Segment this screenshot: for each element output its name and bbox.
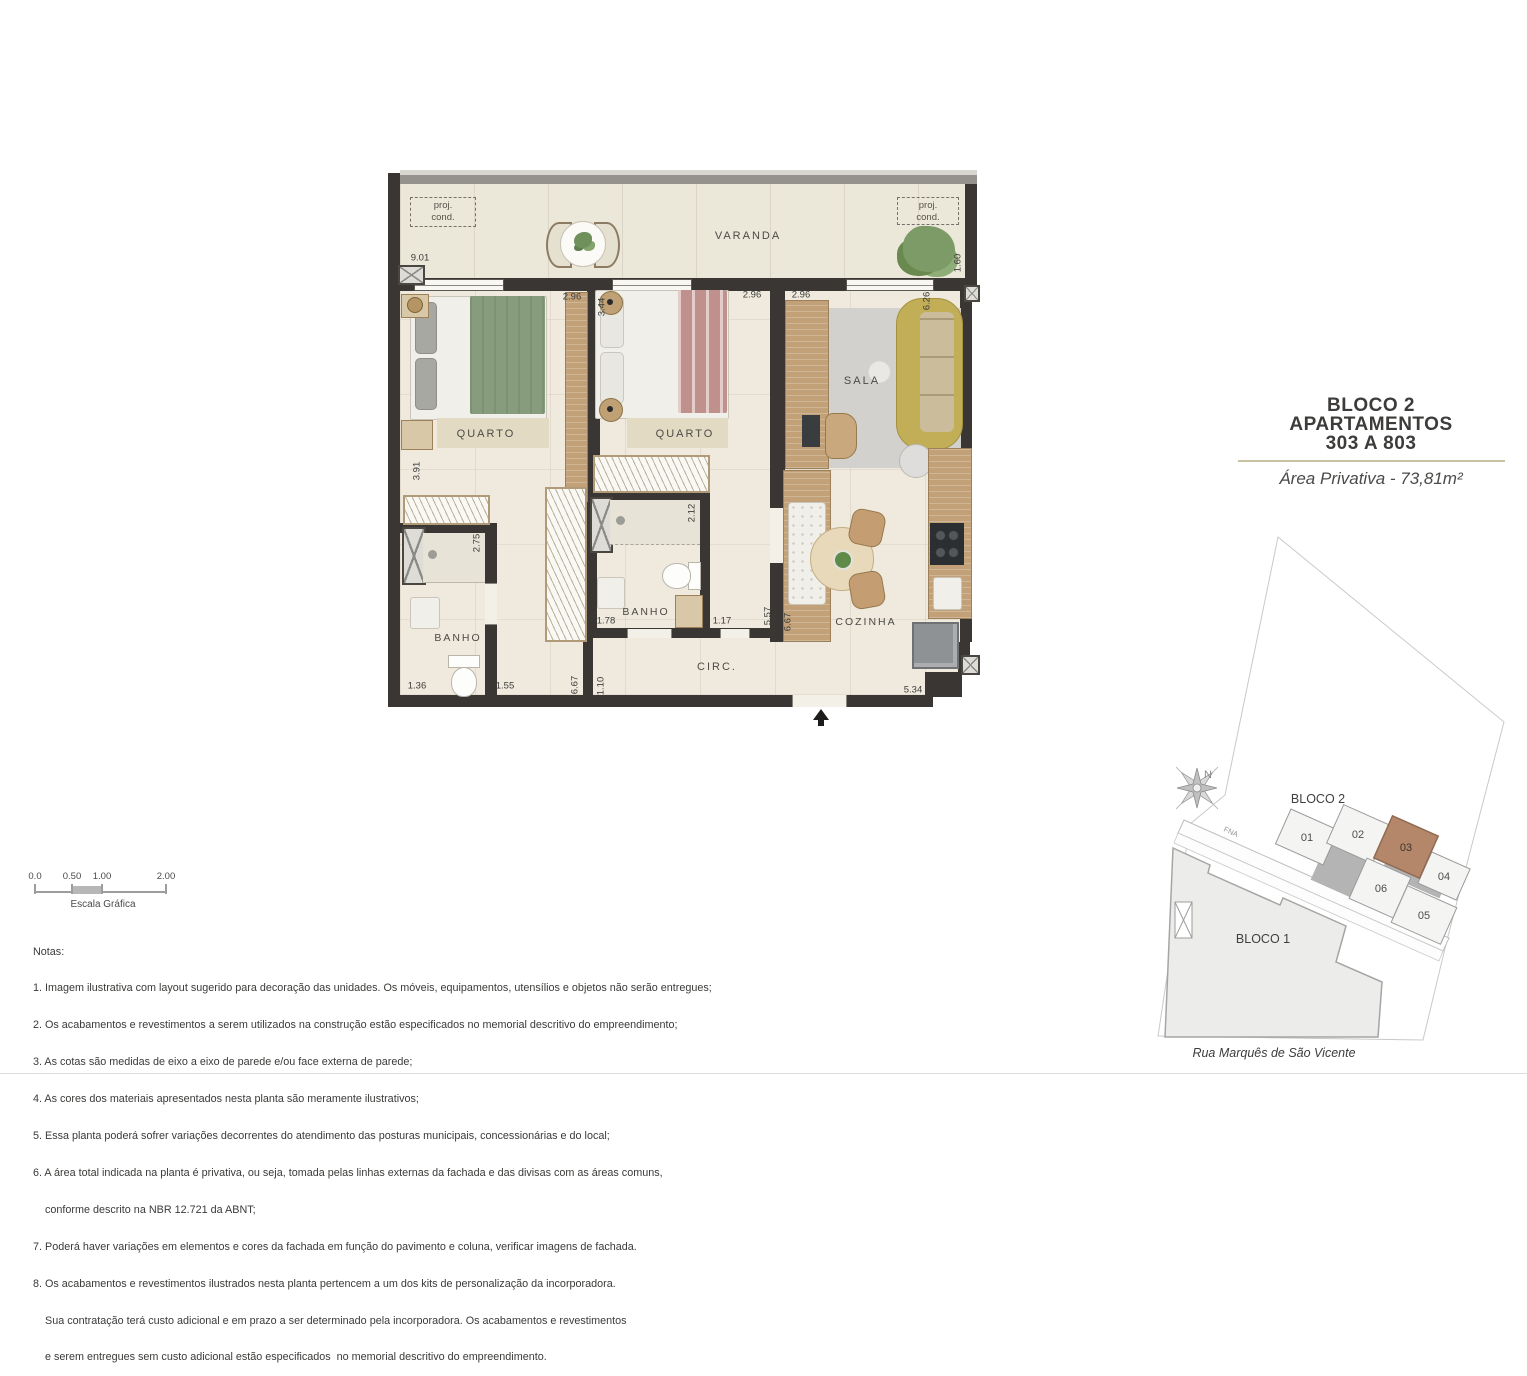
note-line: 3. As cotas são medidas de eixo a eixo d…: [33, 1056, 712, 1068]
dim-9-01: 9.01: [411, 253, 430, 264]
wardrobe-tall: [545, 487, 587, 642]
notes-heading: Notas:: [33, 946, 712, 958]
graphic-scale: 0.0 0.50 1.00 2.00 Escala Gráfica: [28, 871, 188, 915]
fridge: [912, 622, 959, 669]
shower2-head: [616, 516, 625, 525]
label-varanda: VARANDA: [715, 230, 781, 242]
wall-varanda-right: [965, 184, 977, 282]
wall-bottom-right: [845, 695, 933, 707]
private-area-text: Área Privativa - 73,81m²: [1221, 469, 1521, 489]
window-quarto1: [414, 279, 504, 291]
dim-5-34: 5.34: [904, 685, 923, 696]
note-line: e serem entregues sem custo adicional es…: [33, 1351, 712, 1363]
note-line: conforme descrito na NBR 12.721 da ABNT;: [33, 1204, 712, 1216]
varanda-plant: [903, 226, 955, 272]
wall-banho2-top: [597, 493, 707, 500]
dim-1-55: 1.55: [496, 681, 515, 692]
dining-chair-bottom: [847, 569, 887, 610]
bed1-pillow2: [415, 358, 437, 410]
bloco1-label: BLOCO 1: [1236, 932, 1290, 946]
label-cozinha: COZINHA: [835, 616, 896, 628]
wall-step: [925, 672, 962, 697]
balcony-slab-edge: [400, 175, 977, 184]
unit-06-label: 06: [1375, 883, 1387, 895]
note-line: 1. Imagem ilustrativa com layout sugerid…: [33, 982, 712, 994]
scale-caption: Escala Gráfica: [28, 899, 178, 910]
label-sala: SALA: [844, 375, 880, 387]
bed1-blanket: [470, 296, 545, 414]
closet-quarto1: [403, 495, 490, 525]
dim-1-10: 1.10: [596, 677, 607, 696]
desk-monitor: [802, 415, 820, 447]
shower1-head: [428, 550, 437, 559]
bed2-pillow2: [600, 352, 624, 404]
dim-2-12: 2.12: [687, 504, 698, 523]
label-circ: CIRC.: [697, 661, 737, 673]
entrance-arrow-icon: [813, 709, 829, 720]
dim-5-57: 5.57: [763, 607, 774, 626]
nightstand1-bottom: [401, 420, 433, 450]
scale-tick-100: 1.00: [93, 871, 112, 882]
varanda-floor: [400, 184, 965, 278]
dim-2-96-q1: 2.96: [563, 292, 582, 303]
note-line: 6. A área total indicada na planta é pri…: [33, 1167, 712, 1179]
brochure-page: { "title_block": { "line1": "BLOCO 2", "…: [0, 0, 1527, 1080]
scale-tick-0: 0.0: [28, 871, 41, 882]
door-banho2: [627, 629, 672, 638]
shaft-cozinha-corner: [961, 655, 980, 675]
wall-circ-stub: [583, 638, 593, 697]
wall-left: [388, 173, 400, 707]
closet-quarto2: [593, 455, 710, 493]
label-quarto1: QUARTO: [457, 428, 516, 440]
kitchen-sink: [933, 577, 962, 610]
dim-2-75: 2.75: [472, 534, 483, 553]
unit-03-label: 03: [1400, 842, 1412, 854]
shaft-left: [398, 265, 425, 285]
title-line3: 303 A 803: [1221, 434, 1521, 453]
note-line: 2. Os acabamentos e revestimentos a sere…: [33, 1019, 712, 1031]
note-line: 4. As cores dos materiais apresentados n…: [33, 1093, 712, 1105]
scale-tick-050: 0.50: [63, 871, 82, 882]
dim-1-78: 1.78: [597, 616, 616, 627]
dim-6-26: 6.26: [922, 292, 933, 311]
dim-1-17: 1.17: [713, 616, 732, 627]
dim-6-67-circ: 6.67: [570, 676, 581, 695]
proj-cond-box-right: proj. cond.: [897, 197, 959, 225]
note-line: 7. Poderá haver variações em elementos e…: [33, 1241, 712, 1253]
sink1: [410, 597, 440, 629]
toilet1-bowl: [451, 667, 477, 697]
cabinet-banho2: [675, 595, 703, 628]
dim-2-96-sala: 2.96: [792, 290, 811, 301]
dim-2-96-q2: 2.96: [743, 290, 762, 301]
wardrobe-strip-quarto1: [565, 292, 588, 502]
note-line: 8. Os acabamentos e revestimentos ilustr…: [33, 1278, 712, 1290]
note-line: Sua contratação terá custo adicional e e…: [33, 1315, 712, 1327]
title-line1: BLOCO 2: [1221, 396, 1521, 415]
dining-plant: [833, 550, 853, 570]
stool2-bottom-dot: [607, 406, 613, 412]
toilet2-bowl: [662, 563, 691, 589]
scale-segment: [72, 886, 102, 894]
proj-cond-text: proj.: [434, 200, 452, 211]
proj-cond-box-left: proj. cond.: [410, 197, 476, 227]
dim-1-36: 1.36: [408, 681, 427, 692]
unit-04-label: 04: [1438, 871, 1450, 883]
site-map: 01 02 03 04 05 06 BLOCO 2 BLOCO 1 N FNA …: [1150, 530, 1527, 1080]
title-divider: [1238, 460, 1505, 462]
dim-3-91: 3.91: [412, 462, 423, 481]
nightstand1-lamp: [407, 297, 423, 313]
notes-block: Notas: 1. Imagem ilustrativa com layout …: [33, 921, 712, 1376]
shaft-sala-corner: [964, 285, 980, 302]
page-bottom-rule: [0, 1073, 1527, 1074]
sofa-cushions: [920, 312, 954, 432]
street-name: Rua Marquês de São Vicente: [1192, 1046, 1355, 1060]
door-sala-varanda: [846, 279, 934, 291]
dim-3-44: 3.44: [597, 298, 608, 317]
unit-01-label: 01: [1301, 832, 1313, 844]
desk-chair: [825, 413, 857, 459]
label-banho1: BANHO: [434, 632, 481, 644]
cooktop-burners: [934, 527, 960, 561]
stool2-top-dot: [607, 299, 613, 305]
title-block: BLOCO 2 APARTAMENTOS 303 A 803: [1221, 396, 1521, 453]
bed2-blanket: [678, 290, 727, 413]
north-label: N: [1204, 769, 1212, 781]
scale-tick-200: 2.00: [157, 871, 176, 882]
entrance-arrow-stem: [818, 719, 824, 726]
door-banho1: [485, 583, 497, 625]
entrance-door: [792, 695, 847, 707]
unit-05-label: 05: [1418, 910, 1430, 922]
floor-plan: proj. cond. proj. cond.: [388, 170, 978, 726]
label-banho2: BANHO: [622, 606, 669, 618]
label-quarto2: QUARTO: [656, 428, 715, 440]
unit-02-label: 02: [1352, 829, 1364, 841]
sink2: [597, 577, 625, 609]
bloco2-label: BLOCO 2: [1291, 792, 1345, 806]
note-line: 5. Essa planta poderá sofrer variações d…: [33, 1130, 712, 1142]
dim-6-67-coz: 6.67: [783, 613, 794, 632]
door-circ: [720, 629, 750, 638]
title-line2: APARTAMENTOS: [1221, 415, 1521, 434]
dim-1-60: 1.60: [953, 254, 964, 273]
